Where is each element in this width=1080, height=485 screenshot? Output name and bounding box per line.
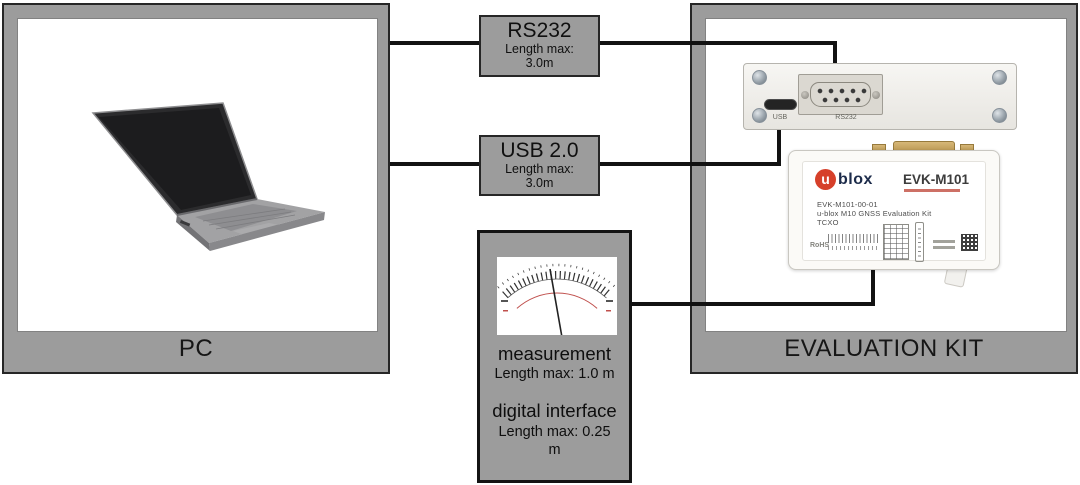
measurement-length: Length max: 1.0 m xyxy=(480,366,629,382)
usb-cable-title: USB 2.0 xyxy=(481,140,598,162)
evk-tagline-bar xyxy=(904,189,960,192)
rs232-cable-line-right xyxy=(600,41,837,45)
rs232-cable-title: RS232 xyxy=(481,20,598,42)
pc-image-panel xyxy=(17,18,378,332)
laptop-image xyxy=(73,81,333,261)
rs232-length-value: 3.0m xyxy=(481,56,598,70)
digital-interface-length-line1: Length max: 0.25 xyxy=(480,423,629,441)
usb-cable-block: USB 2.0 Length max: 3.0m xyxy=(479,135,600,196)
usb-cable-line-left xyxy=(390,162,479,166)
evk-m101-body: u blox EVK-M101 EVK-M101-00-01 u-blox M1… xyxy=(788,150,1000,270)
usb-rs232-adapter-image: USB RS232 xyxy=(743,63,1017,130)
pin-header-diagram xyxy=(883,224,909,260)
usb-cable-line-drop xyxy=(777,126,781,166)
usb-cable-line-right xyxy=(600,162,781,166)
db9-connector xyxy=(798,74,883,115)
pinout-ticks xyxy=(828,246,880,250)
qr-code-icon xyxy=(961,234,978,251)
db9-screwhole xyxy=(801,91,809,99)
evk-oscillator: TCXO xyxy=(817,218,839,227)
measurement-title: measurement xyxy=(480,343,629,365)
pc-label: PC xyxy=(4,335,388,363)
digital-interface-length-line2: m xyxy=(480,441,629,459)
usb-length-label: Length max: xyxy=(481,162,598,176)
analog-meter-image xyxy=(497,257,617,335)
screw-icon xyxy=(752,70,767,85)
pinout-ticks xyxy=(828,234,880,243)
db9-metal-shell xyxy=(810,82,871,107)
db9-screwhole xyxy=(872,91,880,99)
ublox-logo-text: blox xyxy=(838,171,873,189)
digital-interface-title: digital interface xyxy=(480,400,629,422)
adapter-usb-label: USB xyxy=(755,114,805,121)
screw-icon xyxy=(992,70,1007,85)
measurement-line-drop xyxy=(871,267,875,306)
rs232-length-label: Length max: xyxy=(481,42,598,56)
digital-interface-length: Length max: 0.25 m xyxy=(480,423,629,459)
rs232-cable-block: RS232 Length max: 3.0m xyxy=(479,15,600,77)
screw-icon xyxy=(992,108,1007,123)
evk-part-number: EVK-M101-00-01 xyxy=(817,200,878,209)
ublox-logo-icon: u xyxy=(815,169,836,190)
measurement-block: measurement Length max: 1.0 m digital in… xyxy=(477,230,632,483)
pc-block: PC xyxy=(2,3,390,374)
setup-diagram: PC EVALUATION KIT RS232 Length max: 3.0m… xyxy=(0,0,1080,485)
measurement-line xyxy=(632,302,875,306)
connector-strip-diagram xyxy=(915,222,924,262)
usb-length-value: 3.0m xyxy=(481,176,598,190)
evk-model-text: EVK-M101 xyxy=(903,172,969,187)
adapter-rs232-label: RS232 xyxy=(816,114,876,121)
evk-description: u-blox M10 GNSS Evaluation Kit xyxy=(817,209,931,218)
evk-m101-image: u blox EVK-M101 EVK-M101-00-01 u-blox M1… xyxy=(788,150,1000,270)
rohs-logo: RoHS xyxy=(810,242,829,249)
rs232-cable-line-left xyxy=(390,41,479,45)
serial-number-text xyxy=(933,240,955,243)
evk-m101-label-plate: u blox EVK-M101 EVK-M101-00-01 u-blox M1… xyxy=(802,161,986,261)
evaluation-kit-label: EVALUATION KIT xyxy=(692,335,1076,363)
usb-c-port xyxy=(764,99,797,110)
serial-number-text xyxy=(933,246,955,249)
